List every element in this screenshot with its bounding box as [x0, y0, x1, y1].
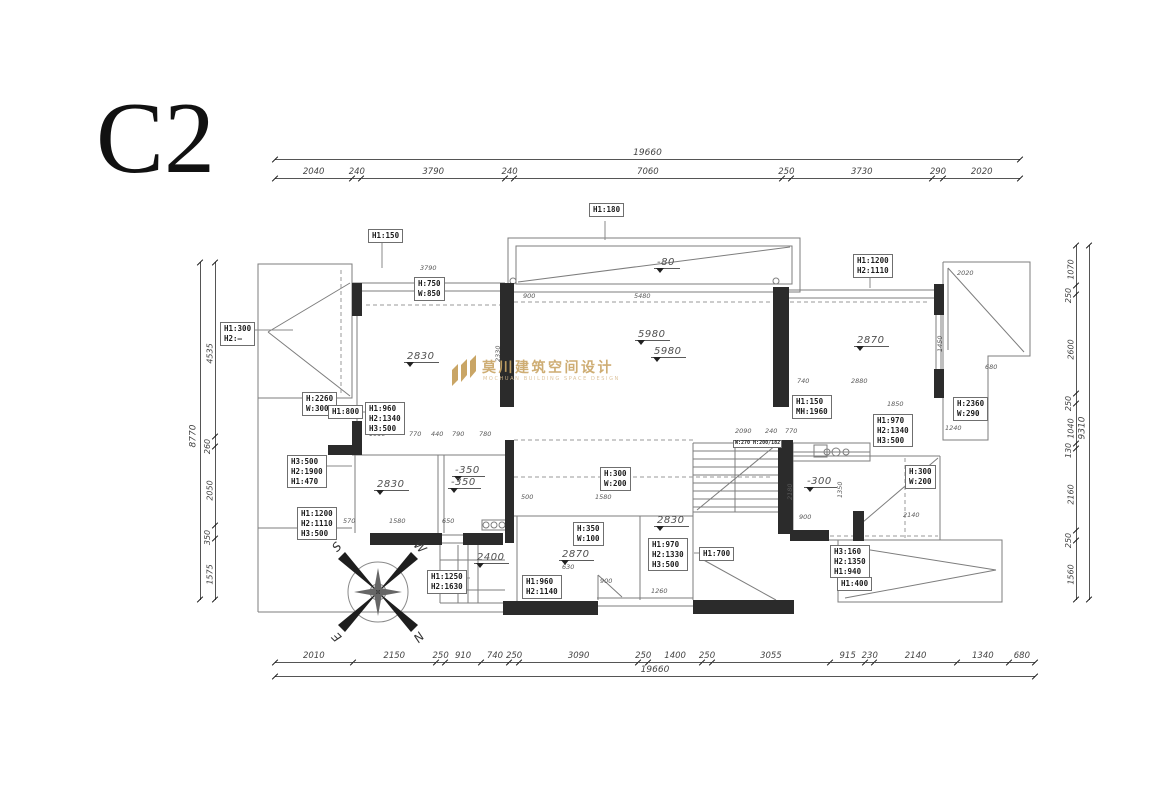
- height-callout-label: W:270 H:200/182: [733, 440, 782, 448]
- dim-segment: 7060: [514, 160, 782, 179]
- dim-segment: 250: [782, 160, 791, 179]
- dim-segment: 290: [932, 160, 943, 179]
- height-callout-label: H1:1250 H2:1630: [427, 570, 467, 594]
- dim-segment: 260: [201, 437, 216, 447]
- dim-segment: 1340: [957, 644, 1009, 663]
- dim-segment-label: 2010: [303, 651, 325, 661]
- interior-dimension: 1580: [595, 493, 612, 501]
- dim-segment-label: 2160: [1067, 484, 1076, 504]
- level-mark: -80: [654, 257, 680, 269]
- height-callout-label: H1:960 H2:1140: [522, 575, 562, 599]
- height-callout-label: H1:150 MH:1960: [792, 395, 832, 419]
- height-callout-label: H1:700: [699, 547, 734, 561]
- dim-total-label: 19660: [641, 665, 670, 675]
- dim-total-label: 19660: [633, 148, 662, 158]
- dim-segment: 2040: [275, 160, 352, 179]
- interior-dimension: 900: [523, 292, 535, 300]
- floorplan-canvas: C2 1966020402403790240706025037302902020…: [0, 0, 1150, 794]
- dim-total-label: 9310: [1077, 416, 1087, 439]
- interior-dimension: 900: [600, 577, 612, 585]
- dim-segment-label: 4535: [206, 344, 215, 364]
- interior-dimension: 1580: [389, 517, 406, 525]
- interior-dimension: 2020: [957, 269, 974, 277]
- dim-segment-label: 1575: [206, 564, 215, 584]
- dim-segments-line: 453526020503501575: [201, 262, 216, 600]
- dim-segment: 250: [1062, 531, 1077, 541]
- height-callout-label: H:350 W:100: [573, 522, 604, 546]
- watermark-text-en: MOCHUAN BUILDING SPACE DESIGN: [483, 376, 620, 382]
- dim-segment: 4535: [201, 262, 216, 437]
- level-mark: 2830: [374, 479, 409, 491]
- dim-chain-bottom: 2010215025091074025030902501400250305591…: [275, 644, 1035, 677]
- dim-segment-label: 1070: [1067, 260, 1076, 280]
- dim-total-line: 8770: [188, 262, 201, 600]
- interior-dimension: 1240: [945, 424, 962, 432]
- dim-segment: 2160: [1062, 449, 1077, 531]
- dim-segment-label: 680: [1014, 651, 1030, 661]
- dim-segment-label: 3055: [760, 651, 782, 661]
- watermark-logo-icon: [452, 355, 476, 386]
- interior-dimension: 2090: [735, 427, 752, 435]
- wall-segment: [500, 283, 514, 407]
- dim-segment: 3055: [712, 644, 830, 663]
- dim-segment: 250: [638, 644, 648, 663]
- dim-segment: 250: [436, 644, 446, 663]
- interior-dimension: 1450: [936, 335, 944, 352]
- dim-segment-label: 2600: [1067, 339, 1076, 359]
- drawing-title: C2: [96, 88, 215, 190]
- dim-segment-label: 2020: [971, 167, 993, 177]
- dim-segment-label: 910: [455, 651, 471, 661]
- height-callout-label: H1:300 H2:—: [220, 322, 255, 346]
- dim-segment: 3090: [519, 644, 638, 663]
- interior-dimension: 440: [431, 430, 443, 438]
- dim-segment: 250: [1062, 394, 1077, 404]
- dim-segment: 250: [1062, 286, 1077, 296]
- height-callout-label: H1:960 H2:1340 H3:500: [365, 402, 405, 435]
- dim-total-line: 19660: [275, 663, 1035, 677]
- dim-total-label: 8770: [188, 425, 198, 448]
- interior-dimension: 650: [442, 517, 454, 525]
- wall-segment: [934, 284, 944, 315]
- dim-segment: 3790: [361, 160, 505, 179]
- interior-dimension: 1260: [651, 587, 668, 595]
- dim-segment-label: 2040: [303, 167, 325, 177]
- height-callout-label: H:300 W:200: [600, 467, 631, 491]
- dim-segment-label: 1340: [972, 651, 994, 661]
- dim-segment-label: 1560: [1067, 565, 1076, 585]
- dim-segment-label: 3090: [568, 651, 590, 661]
- interior-dimension: 780: [479, 430, 491, 438]
- interior-dimension: 790: [452, 430, 464, 438]
- level-mark: 5980: [651, 346, 686, 358]
- interior-dimension: 2180: [786, 483, 794, 500]
- dim-segment: 910: [445, 644, 480, 663]
- dim-segment: 250: [702, 644, 712, 663]
- interior-dimension: 680: [985, 363, 997, 371]
- dim-segment: 1070: [1062, 245, 1077, 286]
- dim-segment: 1400: [648, 644, 702, 663]
- dim-chain-top: 1966020402403790240706025037302902020: [275, 146, 1020, 179]
- height-callout-label: H:750 W:850: [414, 277, 445, 301]
- interior-dimension: 1350: [836, 481, 844, 498]
- height-callout-label: H1:1200 H2:1110 H3:500: [297, 507, 337, 540]
- dim-segment: 1575: [201, 539, 216, 600]
- wall-segment: [934, 369, 944, 398]
- wall-segment: [693, 600, 794, 614]
- dim-segment: 250: [509, 644, 519, 663]
- dim-segment: 3730: [791, 160, 932, 179]
- dim-segment: 2140: [874, 644, 957, 663]
- dim-segment-label: 2150: [383, 651, 405, 661]
- wall-segment: [790, 530, 829, 541]
- level-mark: -350: [448, 477, 481, 489]
- dim-segment: 2010: [275, 644, 353, 663]
- dim-segment-label: 7060: [637, 167, 659, 177]
- level-mark: -350: [452, 465, 485, 477]
- dim-segments-line: 10702502600250104013021602501560: [1062, 245, 1077, 600]
- dim-segment: 1040: [1062, 404, 1077, 444]
- level-mark: 2870: [559, 549, 594, 561]
- dim-segment: 2600: [1062, 295, 1077, 394]
- interior-dimension: 2880: [851, 377, 868, 385]
- dim-chain-right: 107025026002501040130216025015609310: [1062, 245, 1090, 600]
- height-callout-label: H1:970 H2:1340 H3:500: [873, 414, 913, 447]
- dim-segment: 1560: [1062, 541, 1077, 600]
- wall-segment: [503, 601, 598, 615]
- level-mark: -300: [804, 476, 837, 488]
- dim-segment: 2150: [353, 644, 436, 663]
- level-mark: 2830: [654, 515, 689, 527]
- dim-segment: 915: [830, 644, 865, 663]
- height-callout-label: H1:150: [368, 229, 403, 243]
- level-mark: 2830: [404, 351, 439, 363]
- dim-segment: 740: [481, 644, 510, 663]
- height-callout-label: H1:970 H2:1330 H3:500: [648, 538, 688, 571]
- height-callout-label: H:300 W:200: [905, 465, 936, 489]
- dim-segment: 350: [201, 526, 216, 539]
- height-callout-label: H1:180: [589, 203, 624, 217]
- level-mark: 2870: [854, 335, 889, 347]
- interior-dimension: 770: [409, 430, 421, 438]
- height-callout-label: H1:400: [837, 577, 872, 591]
- dim-segment: 240: [352, 160, 361, 179]
- dim-segment-label: 3790: [422, 167, 444, 177]
- level-mark: 5980: [635, 329, 670, 341]
- interior-dimension: 570: [343, 517, 355, 525]
- wall-segment: [773, 287, 789, 407]
- interior-dimension: 900: [799, 513, 811, 521]
- watermark-text-cn: 莫川建筑空间设计: [482, 357, 614, 377]
- dim-segments-line: 20402403790240706025037302902020: [275, 160, 1020, 179]
- wall-segment: [505, 440, 514, 543]
- dim-chain-left: 8770453526020503501575: [188, 262, 216, 600]
- interior-dimension: 3790: [420, 264, 437, 272]
- dim-segment-label: 1400: [664, 651, 686, 661]
- wall-segment: [853, 511, 864, 541]
- interior-dimension: 5480: [634, 292, 651, 300]
- height-callout-label: H1:1200 H2:1110: [853, 254, 893, 278]
- wall-segment: [370, 533, 442, 545]
- interior-dimension: 740: [797, 377, 809, 385]
- dim-segment-label: 3730: [851, 167, 873, 177]
- compass-rose: [338, 552, 418, 632]
- dim-segment: 230: [865, 644, 874, 663]
- interior-dimension: 240: [765, 427, 777, 435]
- dim-segment-label: 2050: [206, 481, 215, 501]
- dim-segment: 2050: [201, 447, 216, 526]
- dim-segment: 680: [1009, 644, 1035, 663]
- height-callout-label: H3:160 H2:1350 H1:940: [830, 545, 870, 578]
- dim-segment-label: 740: [487, 651, 503, 661]
- dim-segment: 2020: [943, 160, 1020, 179]
- wall-segment: [463, 533, 503, 545]
- height-callout-label: H3:500 H2:1900 H1:470: [287, 455, 327, 488]
- dim-total-line: 9310: [1077, 245, 1090, 600]
- height-callout-label: H:2360 W:290: [953, 397, 988, 421]
- height-callout-label: H1:800: [328, 405, 363, 419]
- interior-dimension: 500: [521, 493, 533, 501]
- dim-segment-label: 2140: [905, 651, 927, 661]
- dim-segment-label: 915: [840, 651, 856, 661]
- interior-dimension: 2140: [903, 511, 920, 519]
- dim-segment: 240: [505, 160, 514, 179]
- dim-segments-line: 2010215025091074025030902501400250305591…: [275, 644, 1035, 663]
- interior-dimension: 1850: [887, 400, 904, 408]
- wall-segment: [352, 283, 362, 316]
- dim-segment-label: 1040: [1067, 418, 1076, 438]
- wall-segment: [328, 445, 362, 455]
- dim-total-line: 19660: [275, 146, 1020, 160]
- level-mark: 2400: [474, 552, 509, 564]
- interior-dimension: 770: [785, 427, 797, 435]
